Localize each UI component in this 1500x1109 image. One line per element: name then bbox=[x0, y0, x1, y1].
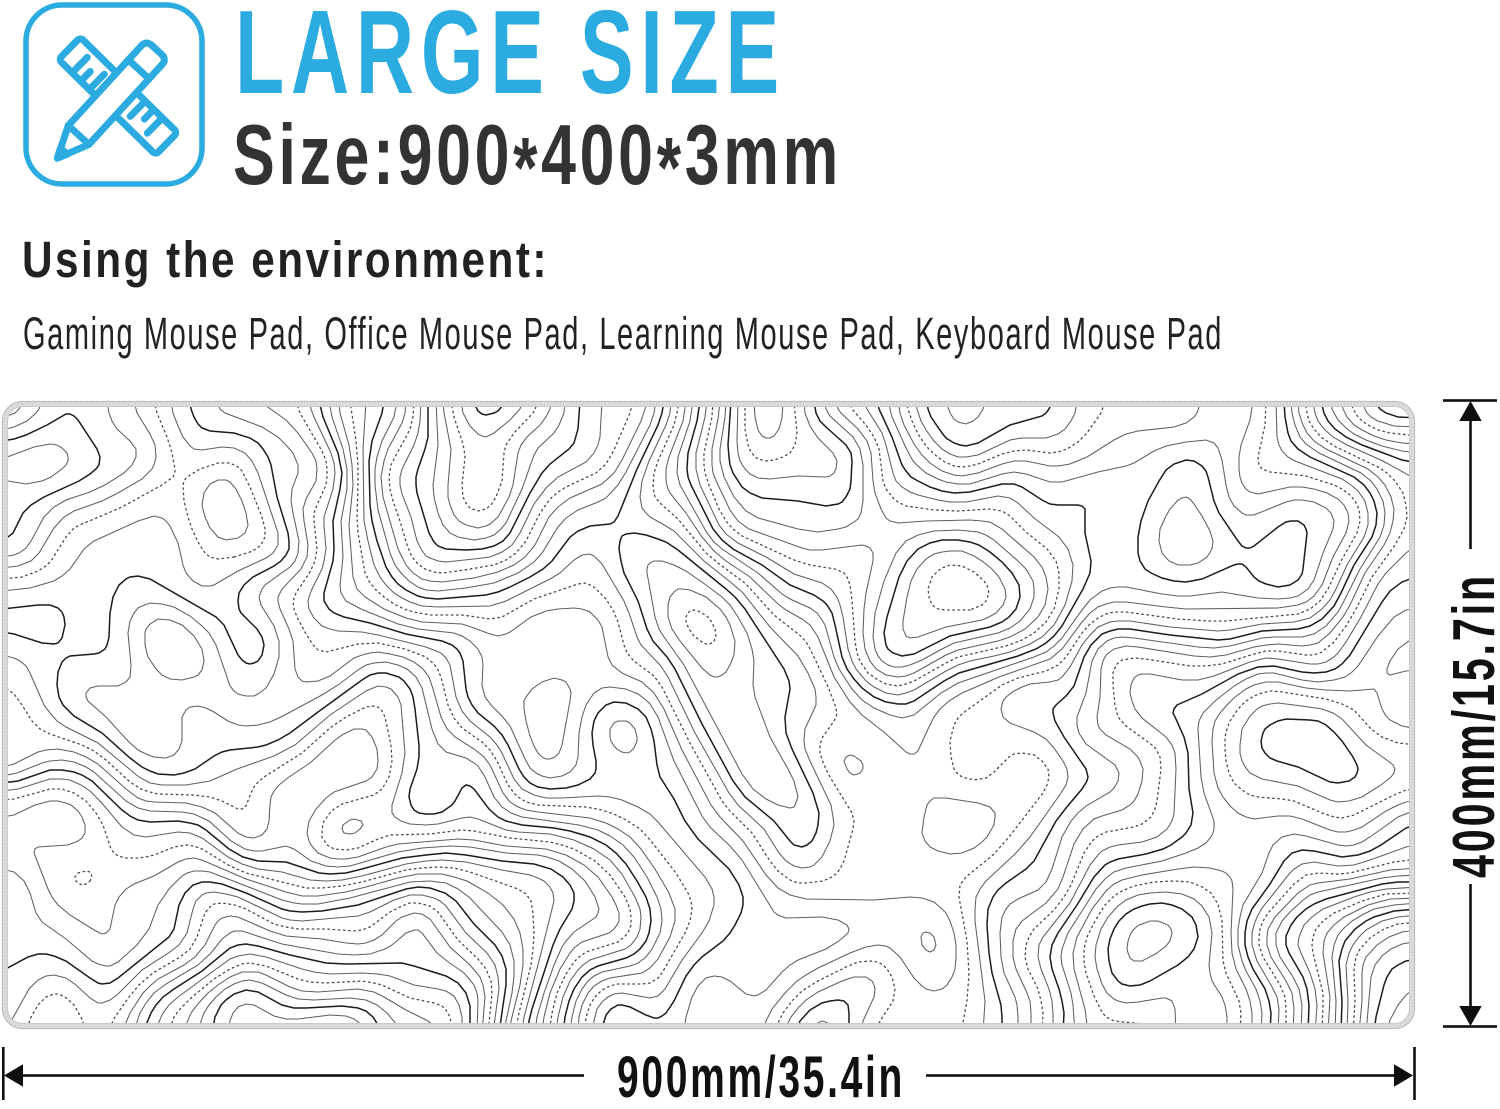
svg-text:400mm/15.7in: 400mm/15.7in bbox=[1441, 573, 1500, 878]
svg-text:Using the environment:: Using the environment: bbox=[22, 231, 549, 288]
svg-text:Size:900*400*3mm: Size:900*400*3mm bbox=[233, 108, 842, 216]
svg-text:LARGE SIZE: LARGE SIZE bbox=[235, 0, 786, 119]
svg-text:900mm/35.4in: 900mm/35.4in bbox=[617, 1045, 905, 1104]
svg-text:Gaming Mouse Pad, Office Mouse: Gaming Mouse Pad, Office Mouse Pad, Lear… bbox=[23, 308, 1223, 359]
